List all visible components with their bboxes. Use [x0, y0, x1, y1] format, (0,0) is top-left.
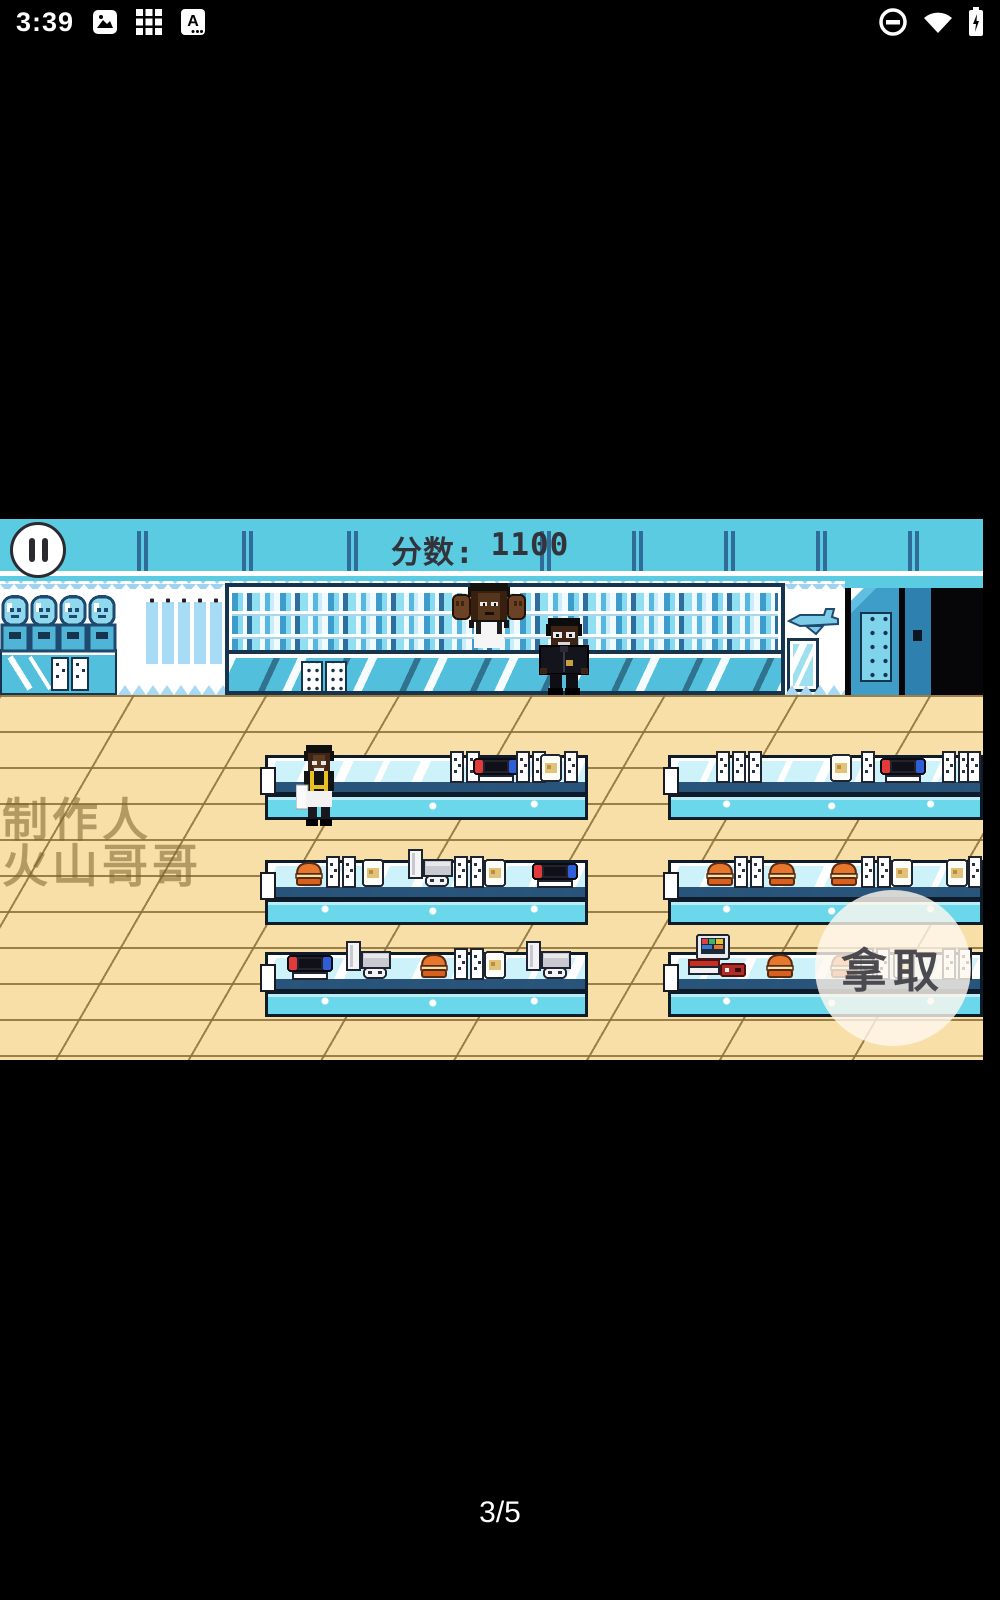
wall-mirror [787, 638, 819, 692]
item-ps5 [524, 940, 574, 980]
item-cream [483, 858, 507, 888]
hanging-towels [146, 598, 226, 668]
wifi-icon [922, 9, 954, 35]
item-burger [766, 860, 798, 888]
pause-button[interactable] [10, 522, 66, 578]
price-tag [663, 767, 679, 795]
item-switch [287, 952, 333, 980]
entrance-door-frame [905, 588, 931, 695]
item-stand [968, 856, 983, 888]
item-stands2 [454, 856, 486, 888]
watermark-line1: 制作人 [2, 797, 202, 843]
clerk-character [296, 745, 346, 832]
wall-bottom-trim [118, 685, 225, 695]
score-label: 分数: [391, 527, 475, 572]
item-ps5 [344, 940, 394, 980]
item-switch [532, 860, 578, 888]
svg-text:A: A [187, 13, 199, 30]
pause-icon [29, 538, 35, 562]
status-bar-right [878, 7, 984, 37]
score-display: 分数: 1100 [391, 527, 569, 572]
hud-tick [908, 531, 919, 571]
item-stands2 [326, 856, 358, 888]
hud-tick [724, 531, 735, 571]
watermark-line2: 火山哥哥 [2, 843, 202, 889]
hud-tick [137, 531, 148, 571]
item-burger [293, 860, 325, 888]
entrance-lintel [845, 576, 983, 588]
item-burger [704, 860, 736, 888]
do-not-disturb-icon [878, 7, 908, 37]
customer-character [536, 618, 594, 701]
airplane-sign [786, 608, 840, 636]
score-value: 1100 [491, 527, 570, 572]
item-stand [967, 751, 983, 783]
page-indicator: 3/5 [0, 1496, 1000, 1530]
item-burger [418, 952, 450, 980]
status-bar-left: 3:39 A [16, 7, 206, 38]
clock: 3:39 [16, 7, 74, 38]
item-cream [361, 858, 385, 888]
shop-entrance [845, 576, 983, 695]
hud-tick [816, 531, 827, 571]
price-tag [260, 964, 276, 992]
display-table-row3-left [265, 952, 588, 1017]
item-ps5 [406, 848, 456, 888]
take-button-label: 拿取 [841, 935, 945, 1001]
item-cream [539, 753, 563, 783]
score-bar: 分数: 1100 [0, 519, 983, 576]
gacha-machines [0, 595, 118, 695]
item-switch [880, 755, 926, 783]
item-retro [687, 934, 747, 980]
hud-tick [242, 531, 253, 571]
hud-tick [632, 531, 643, 571]
wall-bottom-trim [785, 685, 845, 695]
price-tag [663, 964, 679, 992]
pause-icon [42, 538, 48, 562]
take-button[interactable]: 拿取 [815, 890, 971, 1046]
hud-tick [347, 531, 358, 571]
entrance-door [851, 588, 899, 695]
price-tag [260, 767, 276, 795]
item-stand [861, 751, 877, 783]
item-burger [764, 952, 796, 980]
item-stands2 [861, 856, 893, 888]
item-stands2 [454, 948, 486, 980]
display-table-row2-left [265, 860, 588, 925]
game-viewport[interactable]: 制作人 火山哥哥 分数: 1100 拿取 [0, 519, 983, 1060]
watermark: 制作人 火山哥哥 [2, 797, 202, 889]
screen: 3:39 A [0, 0, 1000, 1600]
display-table-row1-right [668, 755, 983, 820]
gallery-icon [92, 9, 118, 35]
price-tag [663, 872, 679, 900]
battery-charging-icon [968, 7, 984, 37]
item-cream [945, 858, 969, 888]
item-switch [473, 755, 519, 783]
item-cream [890, 858, 914, 888]
item-cream [483, 950, 507, 980]
item-stands2 [734, 856, 766, 888]
apps-grid-icon [136, 9, 162, 35]
wall-shelf-counter [225, 650, 785, 695]
item-stand [564, 751, 580, 783]
item-stands3 [716, 751, 764, 783]
status-bar: 3:39 A [0, 0, 1000, 44]
price-tag [260, 872, 276, 900]
item-burger [828, 860, 860, 888]
item-cream [829, 753, 853, 783]
letter-a-icon: A [180, 8, 206, 36]
